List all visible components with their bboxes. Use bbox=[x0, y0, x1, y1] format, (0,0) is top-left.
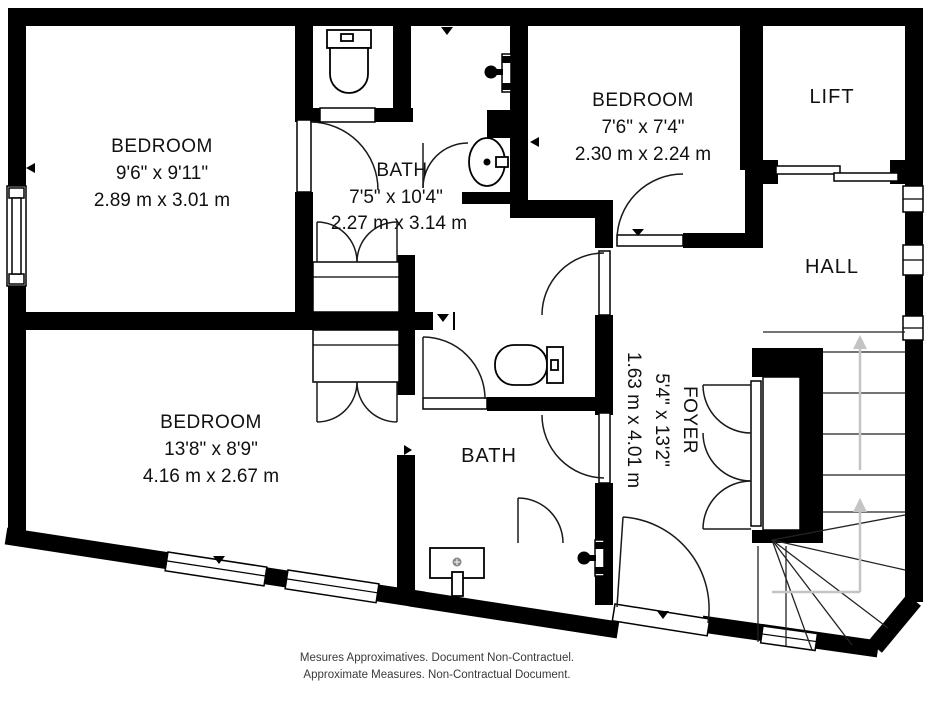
closet-lower bbox=[313, 330, 399, 422]
window-icon-left-wall bbox=[7, 186, 26, 286]
disclaimer-line-en: Approximate Measures. Non-Contractual Do… bbox=[237, 667, 637, 684]
room-label-bath-2: BATH bbox=[461, 445, 517, 467]
room-name: FOYER bbox=[679, 386, 700, 454]
shower-head-icon-bath2 bbox=[578, 540, 605, 576]
sink-icon-bath1 bbox=[469, 138, 508, 186]
door-swing-icon-entrance bbox=[612, 517, 709, 636]
room-imperial: 13'8" x 8'9" bbox=[164, 439, 258, 460]
room-metric: 2.27 m x 3.14 m bbox=[331, 213, 467, 234]
room-imperial: 9'6" x 9'11" bbox=[116, 163, 208, 184]
door-swing-icon-sink-nook bbox=[423, 143, 468, 188]
closet-upper bbox=[313, 222, 399, 312]
window-icon-bottom-2 bbox=[285, 570, 379, 603]
room-name: BEDROOM bbox=[111, 136, 213, 157]
room-label-bedroom-3: BEDROOM 13'8" x 8'9" 4.16 m x 2.67 m bbox=[143, 412, 279, 487]
room-label-hall: HALL bbox=[805, 256, 859, 278]
door-swing-icon-bath2 bbox=[423, 337, 487, 409]
closet-foyer bbox=[703, 377, 800, 530]
toilet-icon-bath2 bbox=[495, 345, 563, 385]
door-swing-icon-bedroom2 bbox=[617, 174, 683, 246]
room-metric: 4.16 m x 2.67 m bbox=[143, 466, 279, 487]
door-swing-icon-hall-to-bath bbox=[542, 251, 610, 315]
door-swing-icon-toilet-nook bbox=[320, 108, 375, 122]
floor-plan-drawing: BEDROOM 9'6" x 9'11" 2.89 m x 3.01 m BAT… bbox=[0, 0, 940, 708]
room-metric: 2.89 m x 3.01 m bbox=[94, 190, 230, 211]
room-label-bath-1: BATH 7'5" x 10'4" 2.27 m x 3.14 m bbox=[331, 160, 467, 234]
disclaimer: Mesures Approximatives. Document Non-Con… bbox=[237, 650, 637, 684]
lift-sliding-doors-icon bbox=[776, 166, 898, 181]
door-swing-icon-shower bbox=[518, 498, 563, 543]
room-label-foyer: FOYER 5'4" x 13'2" 1.63 m x 4.01 m bbox=[623, 352, 700, 488]
room-name: BEDROOM bbox=[592, 90, 694, 111]
shower-head-icon-bath1 bbox=[485, 54, 512, 92]
door-swing-icon-foyer-to-bath2 bbox=[542, 413, 610, 483]
room-name: BATH bbox=[376, 160, 427, 181]
room-imperial: 7'6" x 7'4" bbox=[601, 117, 684, 138]
room-label-bedroom-2: BEDROOM 7'6" x 7'4" 2.30 m x 2.24 m bbox=[575, 90, 711, 165]
disclaimer-line-fr: Mesures Approximatives. Document Non-Con… bbox=[237, 650, 637, 667]
room-metric: 2.30 m x 2.24 m bbox=[575, 144, 711, 165]
sink-icon-bath2 bbox=[430, 548, 484, 596]
toilet-icon-top bbox=[327, 30, 371, 93]
room-imperial: 5'4" x 13'2" bbox=[651, 373, 672, 467]
room-name: BEDROOM bbox=[160, 412, 262, 433]
room-label-lift: LIFT bbox=[809, 86, 854, 108]
room-imperial: 7'5" x 10'4" bbox=[349, 187, 443, 208]
room-label-bedroom-1: BEDROOM 9'6" x 9'11" 2.89 m x 3.01 m bbox=[94, 136, 230, 211]
window-icon-bottom-3 bbox=[761, 626, 818, 650]
door-swing-icon-bedroom1 bbox=[297, 120, 378, 192]
window-icon-right-wall-vents bbox=[903, 186, 923, 340]
room-metric: 1.63 m x 4.01 m bbox=[623, 352, 644, 488]
floor-plan-page: BEDROOM 9'6" x 9'11" 2.89 m x 3.01 m BAT… bbox=[0, 0, 940, 708]
